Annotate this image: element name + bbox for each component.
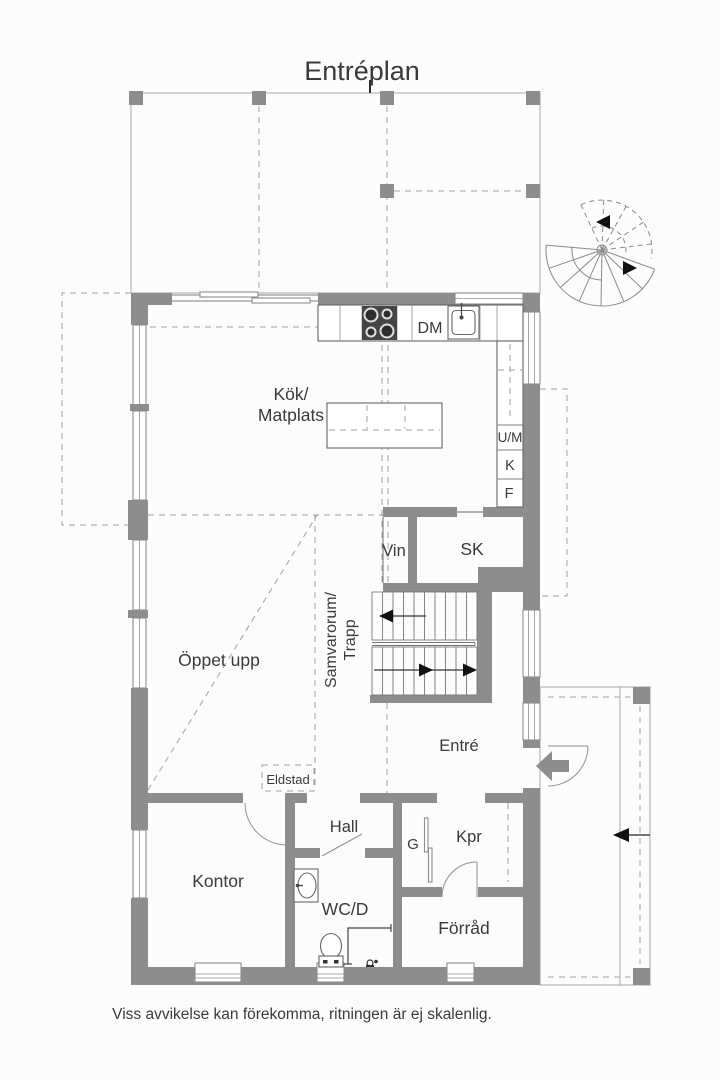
left-projection-dashed-box bbox=[62, 293, 131, 525]
sliding-door bbox=[433, 509, 455, 514]
window bbox=[523, 312, 540, 384]
sliding-door bbox=[200, 292, 258, 297]
spiral-up-arrow bbox=[596, 215, 610, 229]
label-wc: WC/D bbox=[322, 899, 369, 919]
floorplan-drawing: Entréplan Kök/ Matplats DM U/M K F Vin S… bbox=[0, 0, 720, 1080]
label-freezer: F bbox=[505, 486, 514, 502]
stair-down-arrow bbox=[419, 664, 433, 677]
stair-up-arrow bbox=[379, 610, 393, 623]
window bbox=[523, 610, 540, 677]
label-fridge: K bbox=[505, 458, 515, 474]
terrace bbox=[129, 80, 540, 293]
window bbox=[447, 963, 474, 982]
wardrobe-sliding-door bbox=[425, 818, 433, 882]
staircase bbox=[372, 592, 477, 695]
toilet-icon bbox=[319, 934, 343, 968]
window bbox=[195, 963, 241, 982]
window bbox=[133, 540, 146, 610]
washbasin-icon bbox=[294, 869, 318, 902]
spiral-staircase-icon bbox=[546, 200, 655, 306]
label-storage: Förråd bbox=[438, 918, 490, 938]
pillar bbox=[380, 184, 394, 198]
page-title: Entréplan bbox=[304, 56, 420, 86]
pillar bbox=[252, 91, 266, 105]
storage-door-arc bbox=[442, 862, 477, 897]
deck bbox=[540, 687, 650, 985]
label-kitchen-line2: Matplats bbox=[258, 405, 324, 425]
label-social-line2: Trapp bbox=[342, 619, 359, 660]
deck-post bbox=[633, 968, 650, 985]
label-cloakroom: Kpr bbox=[456, 828, 482, 846]
window bbox=[455, 293, 523, 304]
stair-down-arrow bbox=[463, 664, 477, 677]
deck-post bbox=[633, 687, 650, 704]
label-entrance: Entré bbox=[439, 737, 478, 755]
window bbox=[523, 703, 540, 740]
entry-door bbox=[536, 746, 588, 786]
pillar bbox=[526, 184, 540, 198]
window bbox=[133, 618, 146, 688]
spiral-entry-arrow bbox=[623, 261, 637, 275]
label-social-line1: Samvarorum/ bbox=[323, 591, 340, 688]
stove-icon bbox=[362, 306, 397, 340]
label-wine: Vin bbox=[382, 542, 406, 560]
entry-arrow-icon bbox=[536, 751, 569, 781]
disclaimer-text: Viss avvikelse kan förekomma, ritningen … bbox=[112, 1006, 492, 1023]
label-kitchen-line1: Kök/ bbox=[273, 384, 308, 404]
cabinet-column bbox=[497, 341, 523, 507]
right-projection-dashed-box bbox=[540, 389, 567, 596]
floor-drain-icon bbox=[366, 960, 378, 967]
deck-direction-arrow bbox=[613, 828, 629, 842]
sink-icon bbox=[448, 303, 479, 339]
kitchen-island bbox=[327, 403, 442, 448]
window bbox=[133, 325, 146, 408]
label-oven-micro: U/M bbox=[498, 430, 523, 445]
window bbox=[133, 830, 146, 898]
label-closet: SK bbox=[460, 539, 484, 559]
shower-corner bbox=[344, 924, 391, 964]
pillar bbox=[380, 91, 394, 105]
label-office: Kontor bbox=[192, 871, 244, 891]
window bbox=[133, 411, 146, 500]
label-wardrobe: G bbox=[407, 836, 419, 853]
pillar bbox=[129, 91, 143, 105]
label-open-above: Öppet upp bbox=[178, 650, 260, 670]
office-door-arc bbox=[245, 803, 287, 845]
pillar bbox=[526, 91, 540, 105]
label-dishwasher: DM bbox=[418, 320, 443, 337]
wc-door-leaf bbox=[322, 834, 362, 856]
label-fireplace: Eldstad bbox=[266, 772, 309, 787]
sliding-door bbox=[252, 298, 310, 303]
floorplan-page: Entréplan Kök/ Matplats DM U/M K F Vin S… bbox=[0, 0, 720, 1080]
label-hall: Hall bbox=[330, 818, 358, 836]
